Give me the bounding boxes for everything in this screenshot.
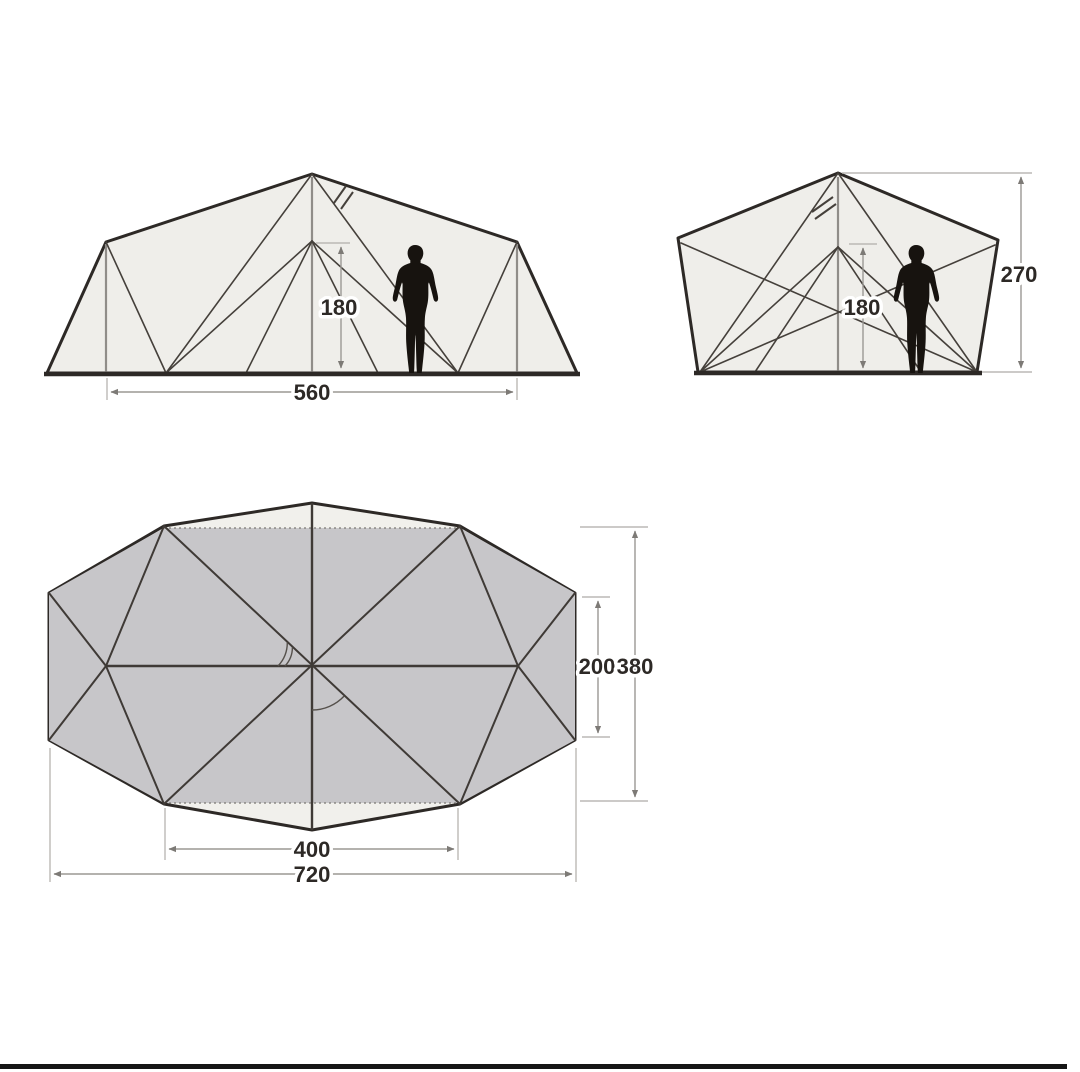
plan-inner-width-label: 400 xyxy=(294,837,331,862)
plan-outer-width-label: 720 xyxy=(294,862,331,887)
bottom-bar xyxy=(0,1064,1067,1069)
tent-dimension-diagram: 180 560 xyxy=(0,0,1080,1072)
end-peak-label: 270 xyxy=(1001,262,1038,287)
end-view: 180 270 xyxy=(678,173,1037,373)
plan-view: 200 380 400 720 xyxy=(49,503,653,887)
side-width-dimension: 560 xyxy=(107,378,517,405)
end-height-label: 180 xyxy=(844,295,881,320)
side-view: 180 560 xyxy=(44,174,580,405)
side-height-label: 180 xyxy=(321,295,358,320)
plan-inner-depth-label: 200 xyxy=(579,654,616,679)
plan-inner-depth-dimension: 200 xyxy=(579,597,616,737)
plan-outer-depth-label: 380 xyxy=(617,654,654,679)
side-width-label: 560 xyxy=(294,380,331,405)
